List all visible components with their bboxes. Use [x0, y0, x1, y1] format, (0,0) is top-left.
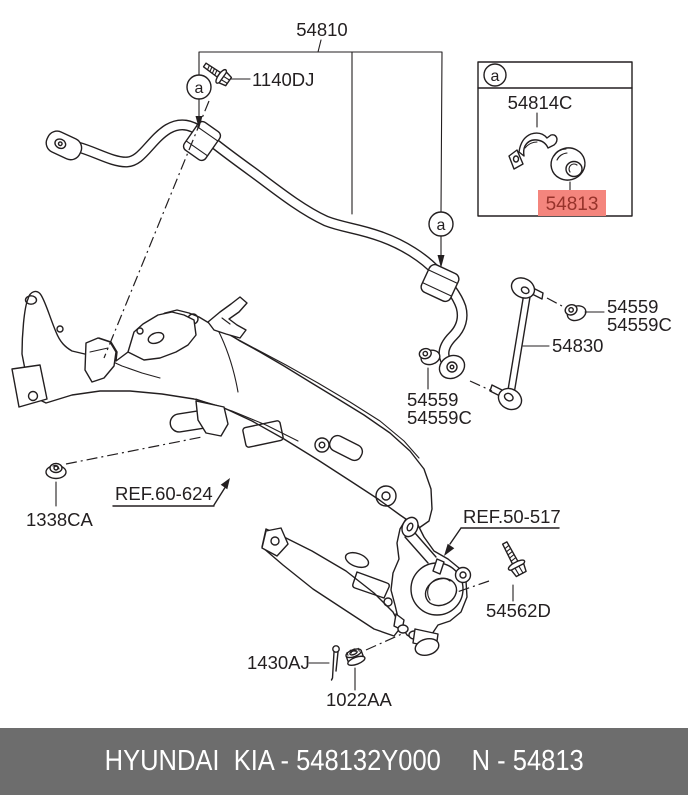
detail-inset-box — [478, 62, 632, 216]
callout-crossmember-ref[interactable]: REF.60-624 — [115, 483, 213, 504]
callout-stabilizer-bushing[interactable]: 54813 — [546, 194, 599, 215]
cotter-pin-drawing — [332, 646, 340, 680]
castle-nut-drawing — [344, 646, 366, 667]
detail-marker-inset: a — [491, 68, 500, 85]
bar-left-eye — [43, 128, 85, 163]
callout-lower-arm-ref[interactable]: REF.50-517 — [463, 506, 561, 527]
callout-link-nut-lower-c[interactable]: 54559C — [407, 407, 472, 428]
callout-cotter-pin[interactable]: 1430AJ — [247, 652, 310, 673]
knuckle-bolt-drawing — [497, 539, 529, 578]
footer-text: HYUNDAI KIA - 548132Y000 N - 54813 — [104, 745, 583, 778]
footer-banner: HYUNDAI KIA - 548132Y000 N - 54813 — [0, 728, 688, 795]
knuckle-drawing — [391, 515, 471, 658]
callout-castle-nut[interactable]: 1022AA — [326, 689, 392, 710]
callout-mounting-nut[interactable]: 1338CA — [26, 509, 94, 530]
callout-clamp-bolt[interactable]: 1140DJ — [252, 69, 314, 90]
callout-stabilizer-link[interactable]: 54830 — [552, 335, 603, 356]
lower-arm-drawing — [262, 528, 401, 636]
detail-marker-left: a — [195, 80, 204, 97]
link-nut-lower-drawing — [418, 345, 441, 366]
callout-knuckle-bolt[interactable]: 54562D — [486, 600, 551, 621]
detail-marker-right: a — [437, 217, 446, 234]
parts-diagram-page: 54810 1140DJ a a a 54814C 54813 54559 54… — [0, 0, 688, 795]
callout-clamp-bracket[interactable]: 54814C — [508, 92, 573, 113]
footer-part-number: HYUNDAI KIA - 548132Y000 — [104, 745, 440, 778]
footer-note: N - 54813 — [471, 745, 583, 778]
diagram-canvas: 54810 1140DJ a a a 54814C 54813 54559 54… — [0, 0, 688, 795]
callout-stabilizer-bar[interactable]: 54810 — [296, 19, 347, 40]
mounting-nut-drawing — [46, 464, 66, 479]
callout-link-nut-upper-c[interactable]: 54559C — [607, 314, 672, 335]
stabilizer-link-drawing — [490, 274, 543, 414]
link-nut-upper-drawing — [564, 301, 588, 324]
